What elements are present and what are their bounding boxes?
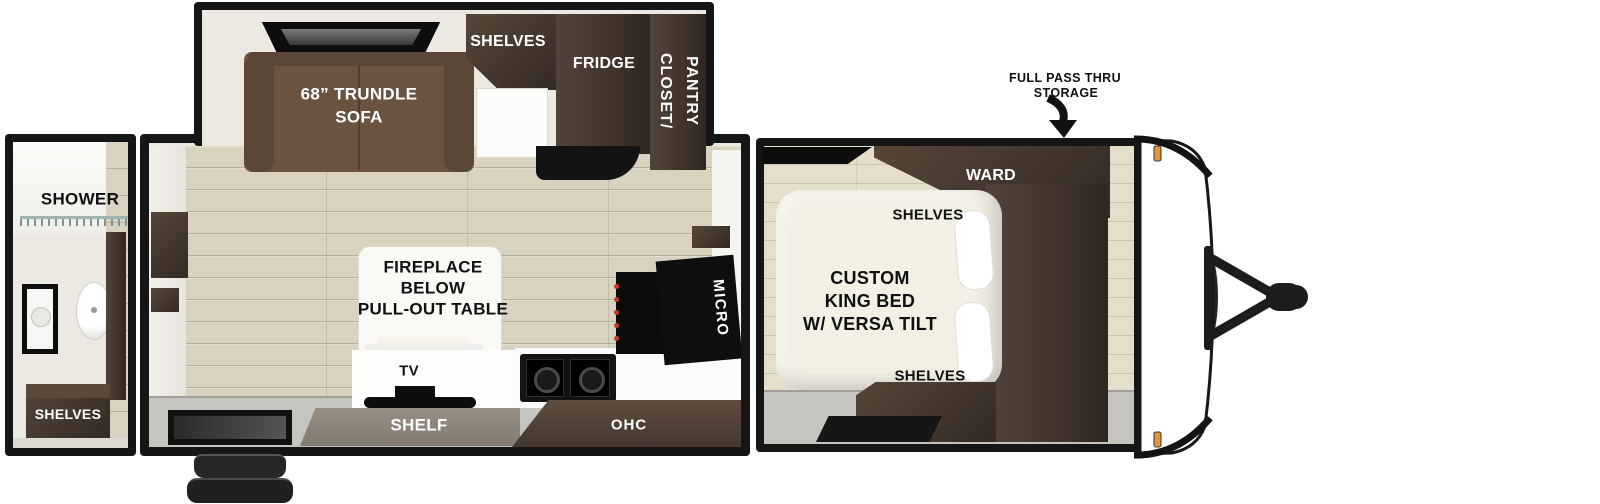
bath-floor-strip [13, 438, 128, 448]
tv-label: TV [399, 364, 419, 379]
closet-pantry-label: CLOSET/ PANTRY [652, 16, 706, 166]
bath-mirror [22, 284, 58, 354]
sofa-label-line1: 68” TRUNDLE [301, 86, 418, 103]
burner-left-ring [534, 367, 560, 393]
fireplace-label-line3: PULL-OUT TABLE [358, 301, 508, 318]
pass-thru-arrow [1032, 94, 1088, 142]
entry-step-lower [187, 478, 293, 503]
bed-label-line1: CUSTOM [830, 269, 909, 287]
fireplace-label-line2: BELOW [401, 280, 466, 297]
burner-right-ring [579, 367, 605, 393]
bath-mirror-reflection [31, 307, 51, 327]
burner-left [526, 359, 564, 397]
fridge-label: FRIDGE [573, 56, 635, 72]
entry-door-mat [168, 410, 292, 445]
tv-icon-stand [395, 386, 435, 397]
bedroom-shelves-top-label: SHELVES [892, 208, 963, 223]
bath-partition [106, 232, 126, 400]
burner-right [570, 359, 610, 397]
fireplace-label-line1: FIREPLACE [383, 259, 482, 276]
bath-shelves-step [26, 384, 110, 398]
closet-pantry-label-line2: PANTRY [678, 16, 704, 166]
clearance-marker-bottom [1154, 432, 1161, 447]
bath-sink-drain [91, 307, 97, 313]
sofa-armrest-right [444, 56, 474, 172]
slideout-shelves-label: SHELVES [470, 34, 546, 50]
bath-shelves-label: SHELVES [35, 407, 101, 421]
front-cap-body [1140, 140, 1213, 454]
entry-step-upper [194, 454, 286, 478]
slideout-window-glass [278, 29, 424, 45]
front-cap-svg [1120, 126, 1320, 476]
microwave: MICRO [656, 255, 743, 365]
bed-label-line2: KING BED [825, 292, 915, 310]
fridge [556, 14, 652, 154]
floorplan-canvas: SHOWER SHELVES 68” TRUNDLE SOFA CLOSET/ … [0, 0, 1600, 504]
wall-tv-cabinet [151, 212, 188, 278]
sofa-label-line2: SOFA [335, 109, 383, 126]
wardrobe [986, 184, 1108, 442]
ohc-label: OHC [611, 418, 647, 433]
kitchen-wall-shelf [692, 226, 730, 248]
range-knobs [612, 282, 622, 346]
sofa-back [248, 52, 470, 66]
shower-label: SHOWER [41, 191, 119, 208]
wall-cabinet-small [151, 288, 179, 312]
bed-label-line3: W/ VERSA TILT [803, 315, 937, 333]
tv-icon-bar [364, 397, 476, 408]
closet-pantry-label-line1: CLOSET/ [652, 16, 678, 166]
cooktop [520, 354, 616, 402]
bedroom-rug [816, 416, 942, 442]
micro-label: MICRO [709, 279, 731, 338]
shower-curtain-rings [20, 219, 128, 226]
clearance-marker-top [1154, 146, 1161, 161]
hitch-coupler-tip [1284, 285, 1308, 309]
sofa-armrest-left [244, 56, 274, 172]
shelf-label: SHELF [390, 417, 447, 434]
pass-thru-label-line1: FULL PASS THRU [1009, 72, 1121, 85]
bedroom-shelves-bottom-label: SHELVES [894, 369, 965, 384]
ward-label: WARD [966, 168, 1016, 184]
